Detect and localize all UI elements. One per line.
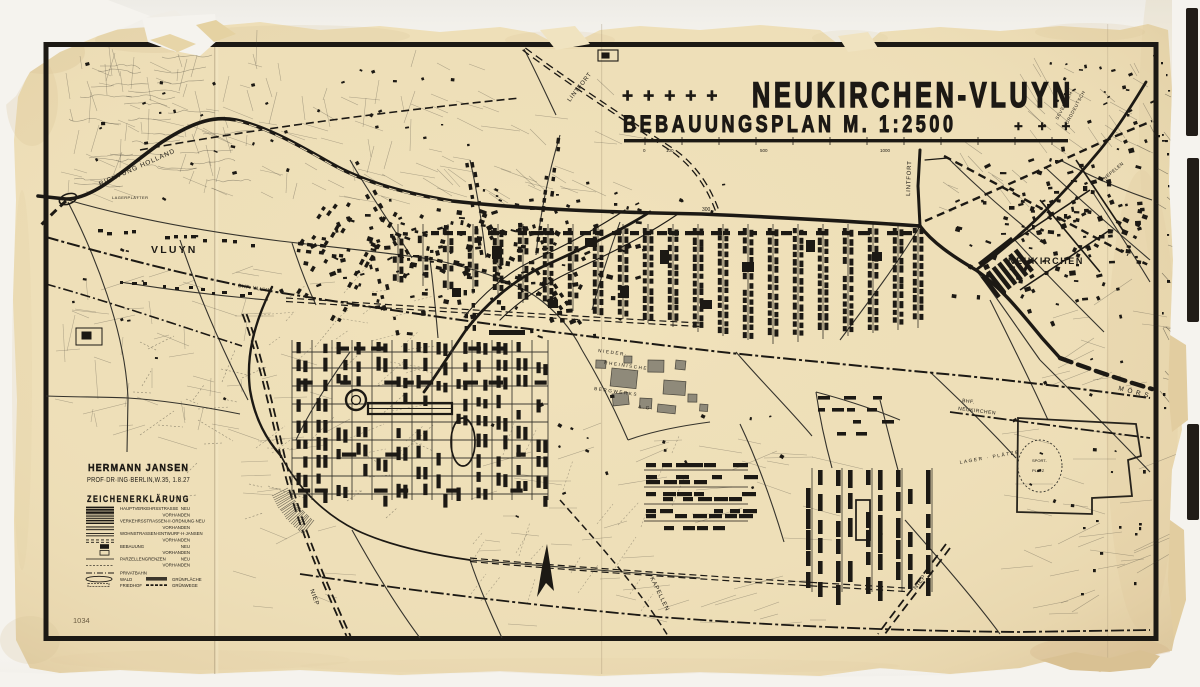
svg-text:PROF·DR·ING·BERLIN,W.35, 1.8.2: PROF·DR·ING·BERLIN,W.35, 1.8.27 — [87, 477, 190, 484]
svg-text:300: 300 — [702, 207, 711, 213]
svg-text:NEU: NEU — [181, 556, 190, 561]
svg-text:1000: 1000 — [880, 148, 891, 153]
svg-text:NEU: NEU — [181, 506, 190, 511]
svg-text:HAUPTVERKEHRSSTRASSE: HAUPTVERKEHRSSTRASSE — [120, 506, 178, 511]
svg-text:+++: +++ — [1014, 118, 1085, 135]
svg-text:SPORT-: SPORT- — [1032, 458, 1047, 463]
svg-text:PARZELLENGRENZEN: PARZELLENGRENZEN — [120, 556, 166, 561]
svg-text:NEUKIRCHEN-VLUYN: NEUKIRCHEN-VLUYN — [752, 76, 1070, 115]
svg-text:VORHANDEN: VORHANDEN — [163, 538, 190, 543]
svg-text:PLATZ: PLATZ — [1032, 468, 1045, 473]
svg-text:+++++: +++++ — [622, 86, 727, 107]
svg-text:BEBAUUNGSPLAN M. 1:2500: BEBAUUNGSPLAN M. 1:2500 — [623, 112, 953, 138]
svg-text:LINTFORT: LINTFORT — [906, 160, 913, 196]
svg-text:NEUKIRCHEN: NEUKIRCHEN — [1008, 256, 1084, 266]
svg-text:VORHANDEN: VORHANDEN — [163, 550, 190, 555]
svg-text:GRÜNFLÄCHE: GRÜNFLÄCHE — [172, 577, 202, 582]
svg-text:1034: 1034 — [73, 616, 90, 625]
svg-text:100: 100 — [666, 148, 674, 153]
svg-text:WALD: WALD — [120, 577, 132, 582]
svg-text:LAGERPLÄTTER: LAGERPLÄTTER — [112, 195, 148, 200]
svg-text:500: 500 — [760, 148, 768, 153]
svg-text:VORHANDEN: VORHANDEN — [163, 563, 190, 568]
svg-text:WOHNSTRASSEN·ENTWURF·H·JANSEN: WOHNSTRASSEN·ENTWURF·H·JANSEN — [120, 531, 203, 536]
svg-text:FRIEDHOF: FRIEDHOF — [120, 583, 142, 588]
svg-text:PRIVATBAHN: PRIVATBAHN — [120, 571, 147, 576]
svg-text:ZEICHENERKLÄRUNG: ZEICHENERKLÄRUNG — [87, 494, 190, 505]
svg-text:VERKEHRSSTRASSEN·II·ORDNUNG·NE: VERKEHRSSTRASSEN·II·ORDNUNG·NEU — [120, 519, 205, 524]
svg-text:VORHANDEN: VORHANDEN — [163, 525, 190, 530]
svg-text:HERMANN JANSEN: HERMANN JANSEN — [88, 462, 189, 474]
svg-text:GRÜNWEGE: GRÜNWEGE — [172, 583, 198, 588]
svg-text:NEU: NEU — [181, 544, 190, 549]
svg-text:BEBAUUNG: BEBAUUNG — [120, 544, 145, 549]
svg-text:VORHANDEN: VORHANDEN — [163, 512, 190, 517]
svg-text:VLUYN: VLUYN — [151, 244, 198, 256]
